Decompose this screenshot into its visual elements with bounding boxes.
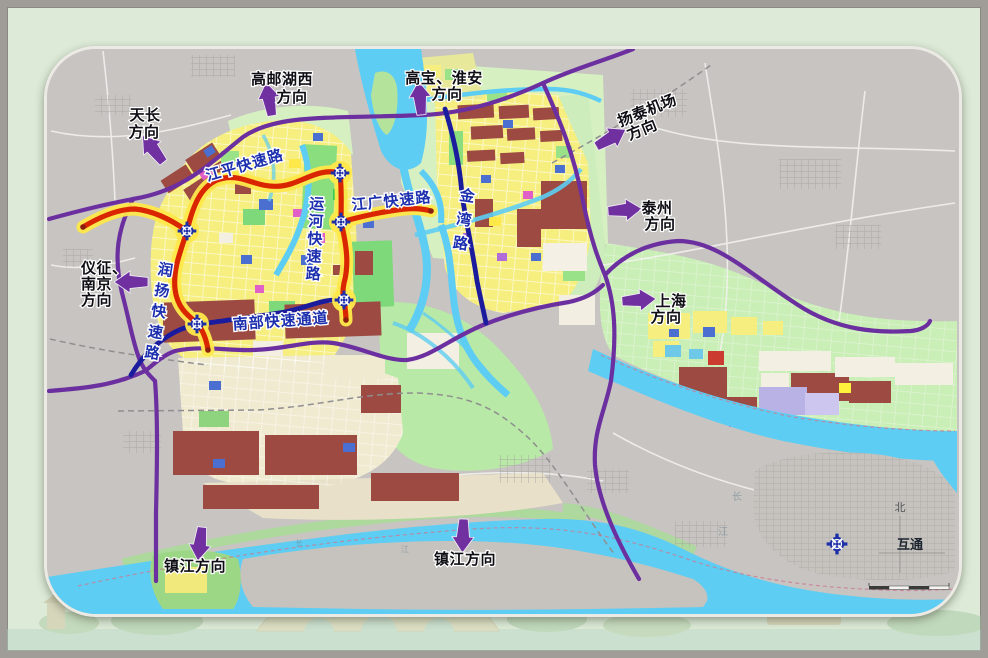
- north-label: 北: [895, 501, 906, 514]
- direction-label-gaobao-2: 方向: [431, 85, 462, 103]
- direction-label-yizheng-3: 方向: [81, 291, 112, 309]
- river-char: 江: [401, 545, 409, 554]
- direction-label-gaoyouhuxi-2: 方向: [276, 88, 307, 106]
- river-char: 长: [732, 491, 742, 503]
- direction-label-gaoyouhuxi-1: 高邮湖西: [251, 70, 313, 88]
- direction-label-tianchang-1: 天长: [129, 106, 161, 124]
- direction-label-tianchang-2: 方向: [128, 123, 159, 141]
- legend-interchange-label: 互通: [897, 537, 923, 553]
- direction-label-shanghai-2: 方向: [650, 308, 681, 326]
- direction-label-taizhou-2: 方向: [644, 215, 675, 233]
- direction-label-zhenjiang-west: 镇江方向: [164, 557, 226, 575]
- river-char: 长: [295, 538, 303, 548]
- river-char: 江: [718, 526, 728, 538]
- direction-label-zhenjiang-east: 镇江方向: [434, 550, 496, 568]
- planning-map: 长 江 长 江 江平快速路 江广快速路 南部快速通道 运河快速路 金湾路 润扬快…: [44, 46, 962, 617]
- slide-background: 长 江 长 江 江平快速路 江广快速路 南部快速通道 运河快速路 金湾路 润扬快…: [0, 0, 988, 658]
